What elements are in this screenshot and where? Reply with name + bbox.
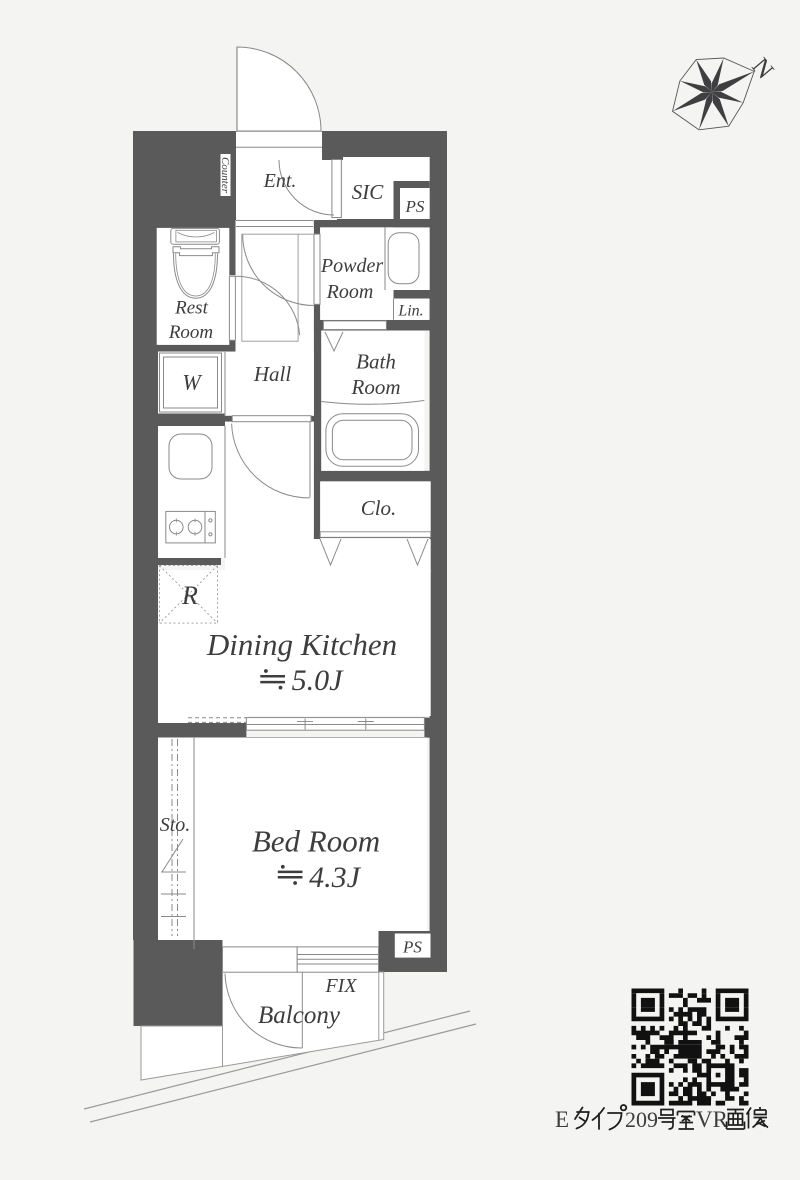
svg-text:Rest: Rest bbox=[174, 298, 208, 319]
svg-text:PS: PS bbox=[402, 938, 422, 957]
svg-text:SIC: SIC bbox=[352, 180, 384, 204]
svg-text:Room: Room bbox=[326, 281, 374, 303]
svg-text:Room: Room bbox=[168, 322, 213, 343]
svg-text:E: E bbox=[555, 1107, 569, 1132]
svg-text:Balcony: Balcony bbox=[258, 1002, 341, 1029]
svg-text:Lin.: Lin. bbox=[397, 303, 423, 320]
svg-text:FIX: FIX bbox=[324, 975, 357, 997]
svg-text:209: 209 bbox=[625, 1107, 658, 1132]
svg-text:Bath: Bath bbox=[356, 350, 396, 374]
svg-text:PS: PS bbox=[405, 197, 425, 216]
svg-text:Dining Kitchen: Dining Kitchen bbox=[206, 627, 397, 662]
svg-text:R: R bbox=[181, 581, 198, 610]
svg-text:Bed Room: Bed Room bbox=[252, 824, 380, 859]
svg-text:VR: VR bbox=[696, 1107, 729, 1132]
svg-text:Room: Room bbox=[351, 375, 401, 399]
svg-text:4.3J: 4.3J bbox=[309, 861, 362, 894]
svg-text:Counter: Counter bbox=[219, 157, 231, 194]
svg-text:Sto.: Sto. bbox=[160, 814, 191, 836]
svg-text:5.0J: 5.0J bbox=[292, 664, 345, 697]
svg-text:Powder: Powder bbox=[320, 255, 383, 277]
svg-text:W: W bbox=[182, 370, 202, 395]
svg-text:Hall: Hall bbox=[253, 362, 292, 386]
svg-text:Clo.: Clo. bbox=[361, 496, 397, 520]
svg-text:Ent.: Ent. bbox=[263, 170, 297, 192]
